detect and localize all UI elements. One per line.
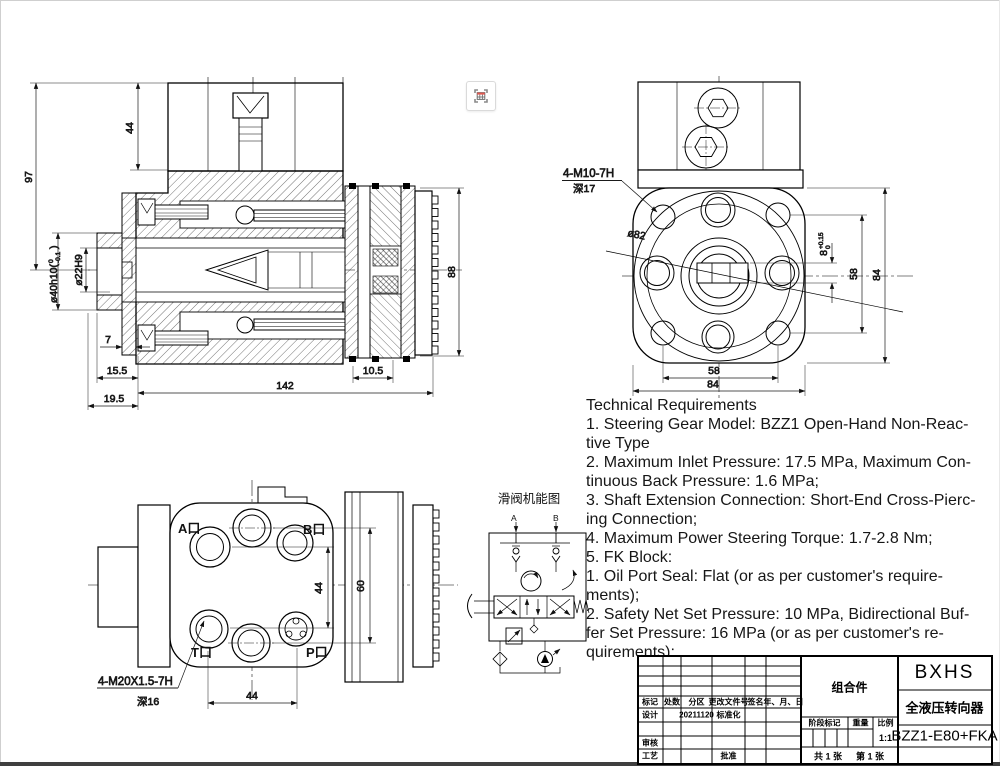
svg-text:0: 0 <box>48 259 55 263</box>
dim-44-b: 44 <box>246 690 258 702</box>
tb-rev-zone: 分区 <box>689 697 705 708</box>
svg-text:+0.15: +0.15 <box>818 232 825 249</box>
dim-44: 44 <box>124 122 136 134</box>
dim-15-5: 15.5 <box>107 365 128 377</box>
tech-line: 3. Shaft Extension Connection: Short-End… <box>586 491 1000 510</box>
tech-line: ing Connection; <box>586 510 1000 529</box>
tb-rev-mark: 标记 <box>642 697 658 708</box>
tb-assembly-type: 组合件 <box>831 679 867 696</box>
svg-text:ø40h10(: ø40h10( <box>48 263 60 303</box>
tb-scale-value: 1:1 <box>879 733 892 743</box>
tb-rev-sign: 签名 <box>748 697 764 708</box>
dim-dia22: ø22H9 <box>73 254 85 286</box>
tb-approve-label: 批准 <box>721 751 737 762</box>
dim-19-5: 19.5 <box>104 393 125 405</box>
dim-10-5: 10.5 <box>363 365 384 377</box>
tb-company: BXHS <box>915 662 975 684</box>
port-thread-note: 4-M20X1.5-7H <box>98 676 173 688</box>
dim-dia82: ø82 <box>626 227 646 243</box>
svg-text:8: 8 <box>818 250 830 256</box>
tech-line: 5. FK Block: <box>586 548 1000 567</box>
svg-text:-0.1: -0.1 <box>55 251 62 263</box>
tb-sheet-no: 第 1 张 <box>856 749 884 762</box>
tech-line: tive Type <box>586 434 1000 453</box>
dim-60: 60 <box>355 580 367 592</box>
tech-line: 1. Steering Gear Model: BZZ1 Open-Hand N… <box>586 415 1000 434</box>
tech-line: fer Set Pressure: 16 MPa (or as per cust… <box>586 624 1000 643</box>
port-thread-depth: 深16 <box>137 696 159 708</box>
schematic-label-b: B <box>553 513 559 523</box>
flange-view <box>606 76 916 398</box>
svg-text:0: 0 <box>825 245 832 249</box>
tb-sheet-total: 共 1 张 <box>814 749 842 762</box>
schematic-title: 滑阀机能图 <box>498 492 561 506</box>
tb-stage-mark: 阶段标记 <box>809 718 841 729</box>
technical-requirements: Technical Requirements 1. Steering Gear … <box>586 396 1000 662</box>
tech-line: ments); <box>586 586 1000 605</box>
tb-design-label: 设计 <box>642 710 658 721</box>
tech-line: 4. Maximum Power Steering Torque: 1.7-2.… <box>586 529 1000 548</box>
dim-58-b: 58 <box>708 365 720 377</box>
tb-check-label: 审核 <box>642 737 658 748</box>
tech-line: 1. Oil Port Seal: Flat (or as per custom… <box>586 567 1000 586</box>
dim-97: 97 <box>23 171 35 183</box>
tb-design-date: 20211120 <box>679 711 714 720</box>
tb-standard-label: 标准化 <box>717 710 741 721</box>
flange-thread-depth: 深17 <box>573 183 595 195</box>
dim-dia40: ø40h10( 0 -0.1 ) <box>48 246 62 304</box>
dim-7: 7 <box>105 334 111 346</box>
tech-line: Technical Requirements <box>586 396 1000 415</box>
tech-line: 2. Maximum Inlet Pressure: 17.5 MPa, Max… <box>586 453 1000 472</box>
dim-84-b: 84 <box>707 379 719 391</box>
dim-142: 142 <box>276 380 294 392</box>
tb-model-code: BZZ1-E80+FKA <box>891 728 997 745</box>
drawing-page: 97 44 ø40h10( 0 -0.1 ) ø22H9 88 <box>0 0 1000 768</box>
dim-58-v: 58 <box>848 268 860 280</box>
schematic-label-a: A <box>511 513 517 523</box>
tech-line: tinuous Back Pressure: 1.6 MPa; <box>586 472 1000 491</box>
tb-rev-date: 年、月、日 <box>764 697 804 708</box>
port-p-label: P口 <box>306 645 328 660</box>
dim-84-v: 84 <box>871 269 883 281</box>
tb-weight-label: 重量 <box>853 718 869 729</box>
dim-slot-8: 8 +0.15 0 <box>818 232 832 256</box>
hydraulic-schematic: 滑阀机能图 A B <box>468 492 590 673</box>
tb-process-label: 工艺 <box>642 751 658 762</box>
tb-rev-count: 处数 <box>664 697 680 708</box>
title-block: 标记 处数 分区 更改文件号 签名 年、月、日 设计 20211120 标准化 … <box>637 655 993 765</box>
dim-44-v: 44 <box>313 582 325 594</box>
port-view <box>88 480 458 700</box>
port-a-label: A口 <box>178 521 200 536</box>
cross-section-view <box>88 77 462 364</box>
tb-product-name: 全液压转向器 <box>905 698 983 717</box>
tb-rev-docno: 更改文件号 <box>709 697 749 708</box>
flange-thread-note: 4-M10-7H <box>563 168 614 180</box>
dim-88: 88 <box>446 266 458 278</box>
svg-text:): ) <box>48 246 60 250</box>
port-b-label: B口 <box>303 522 325 537</box>
tech-line: 2. Safety Net Set Pressure: 10 MPa, Bidi… <box>586 605 1000 624</box>
